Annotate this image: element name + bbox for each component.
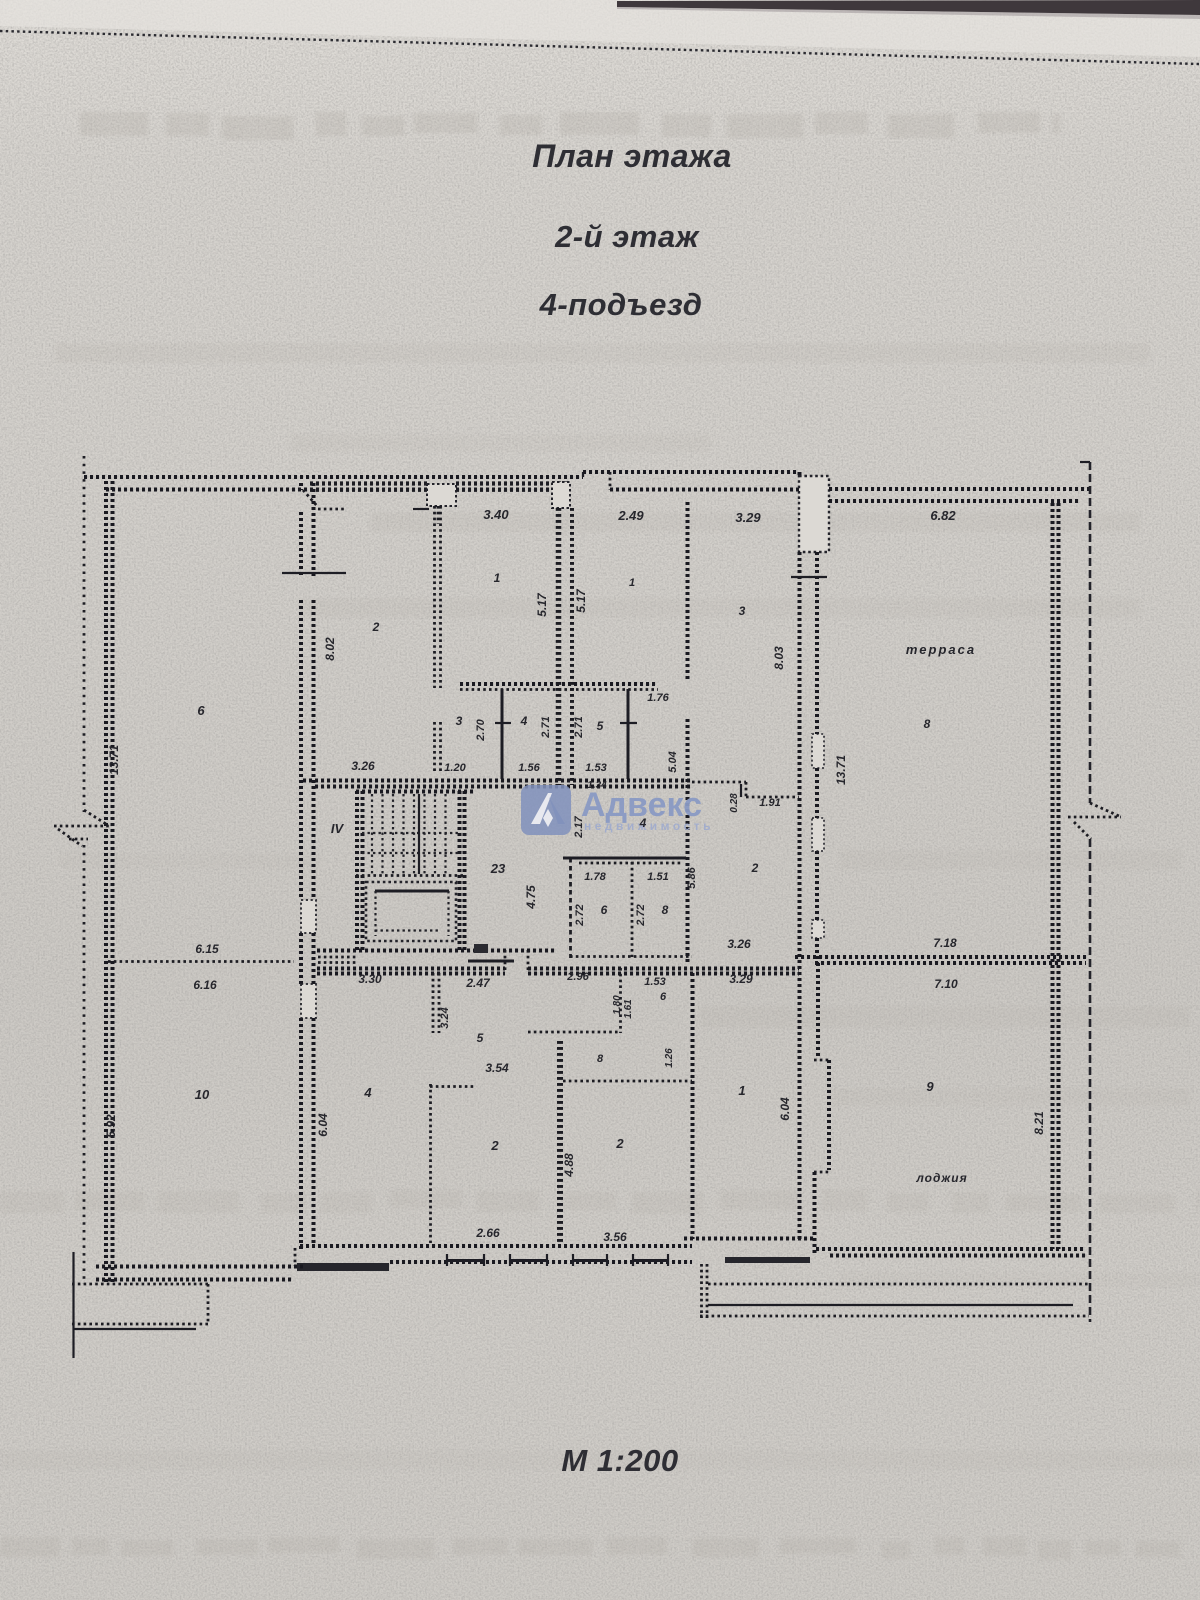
svg-text:8: 8 [924,717,931,731]
svg-text:1.56: 1.56 [518,762,540,774]
svg-text:0.28: 0.28 [729,793,740,813]
svg-text:IV: IV [331,821,345,836]
svg-text:8.02: 8.02 [323,637,337,661]
svg-text:6.82: 6.82 [930,508,956,523]
svg-text:3.29: 3.29 [735,510,761,525]
svg-text:3.30: 3.30 [358,972,382,986]
svg-text:5.86: 5.86 [686,866,698,888]
svg-text:6: 6 [601,903,608,917]
svg-text:6.04: 6.04 [778,1097,792,1121]
svg-text:6: 6 [660,991,667,1003]
svg-text:3.26: 3.26 [351,759,375,773]
svg-text:6.04: 6.04 [316,1113,330,1137]
svg-text:2.47: 2.47 [465,976,491,990]
svg-text:8: 8 [662,903,669,917]
svg-text:10: 10 [195,1087,210,1102]
svg-text:2.70: 2.70 [475,718,487,741]
svg-text:5: 5 [597,719,604,733]
svg-text:5.17: 5.17 [535,592,549,617]
svg-text:2: 2 [490,1138,499,1153]
svg-text:недвижимость: недвижимость [584,819,714,833]
svg-text:3: 3 [739,604,746,618]
svg-text:1.51: 1.51 [647,871,668,883]
svg-text:2: 2 [372,620,380,634]
svg-text:3.26: 3.26 [727,937,751,951]
svg-text:5.04: 5.04 [667,751,679,772]
svg-text:23: 23 [490,861,506,876]
svg-text:2.71: 2.71 [573,716,585,738]
svg-text:М 1:200: М 1:200 [561,1443,678,1478]
svg-text:лоджия: лоджия [915,1171,967,1185]
svg-text:1.76: 1.76 [647,692,669,704]
svg-text:2.96: 2.96 [566,971,589,983]
svg-text:2.71: 2.71 [540,716,552,738]
svg-text:План этажа: План этажа [532,138,732,174]
svg-text:1: 1 [738,1083,745,1098]
svg-text:1.61: 1.61 [623,999,634,1019]
svg-text:8.03: 8.03 [772,646,786,670]
svg-text:1.91: 1.91 [759,797,780,809]
svg-text:4: 4 [520,714,528,728]
svg-text:1.20: 1.20 [444,762,466,774]
svg-text:4.75: 4.75 [524,885,538,910]
svg-text:1: 1 [629,577,635,589]
svg-text:4: 4 [363,1085,372,1100]
svg-text:2-й этаж: 2-й этаж [554,219,701,254]
svg-text:2.72: 2.72 [635,904,647,926]
svg-text:13.71: 13.71 [834,755,848,785]
svg-text:13.71: 13.71 [107,745,121,775]
svg-text:1.53: 1.53 [585,762,606,774]
svg-text:4.88: 4.88 [562,1153,576,1178]
svg-text:3.56: 3.56 [603,1230,627,1244]
svg-text:3.24: 3.24 [439,1007,451,1028]
svg-text:1: 1 [494,571,501,585]
svg-text:4-подъезд: 4-подъезд [539,287,703,322]
svg-text:8: 8 [597,1053,604,1065]
svg-text:5.17: 5.17 [574,588,588,613]
svg-text:7.18: 7.18 [933,936,957,950]
svg-text:3.40: 3.40 [483,507,509,522]
svg-text:6.16: 6.16 [193,978,217,992]
svg-text:3: 3 [456,714,463,728]
svg-text:9: 9 [926,1079,934,1094]
svg-text:терраса: терраса [906,642,976,657]
svg-text:6.15: 6.15 [195,942,219,956]
svg-text:2: 2 [751,861,759,875]
svg-text:6: 6 [197,703,205,718]
svg-text:5.92: 5.92 [104,1114,118,1138]
svg-text:5: 5 [477,1031,484,1045]
svg-text:2.49: 2.49 [617,508,644,523]
svg-text:2: 2 [615,1136,624,1151]
svg-text:1.34: 1.34 [587,780,607,791]
svg-text:7.10: 7.10 [934,977,958,991]
svg-text:2.17: 2.17 [573,815,585,838]
svg-text:1.26: 1.26 [664,1048,675,1068]
svg-text:8.21: 8.21 [1032,1111,1046,1135]
svg-text:1.53: 1.53 [644,976,665,988]
svg-text:3.29: 3.29 [729,972,753,986]
svg-text:2.66: 2.66 [475,1226,500,1240]
svg-text:2.72: 2.72 [574,904,586,926]
svg-text:1.78: 1.78 [584,871,606,883]
svg-text:3.54: 3.54 [485,1061,509,1075]
svg-text:4: 4 [639,816,647,830]
svg-text:1.80: 1.80 [612,995,623,1015]
